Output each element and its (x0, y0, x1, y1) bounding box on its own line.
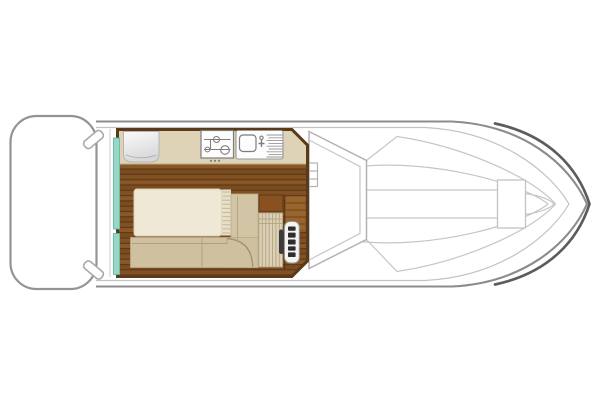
console-instrument (288, 227, 296, 231)
sink-unit (236, 131, 283, 160)
stove-body (201, 131, 234, 159)
console-instrument (288, 233, 296, 238)
console-instrument (288, 240, 296, 245)
boat-floorplan (0, 0, 600, 400)
double-bed (134, 189, 222, 236)
stove-knob (210, 160, 212, 162)
dinette-table (259, 195, 283, 212)
stove (201, 131, 234, 162)
helm-seat-cushion (259, 213, 283, 267)
stove-knob (218, 160, 220, 162)
console-instrument (288, 252, 296, 257)
steering-wheel (279, 230, 284, 255)
bow-locker (498, 180, 526, 228)
sliding-door-upper (113, 138, 119, 229)
stove-knob (214, 160, 216, 162)
sliding-door-lower (113, 234, 119, 275)
saloon-cabin (116, 128, 309, 278)
helm-seat (259, 213, 283, 267)
boat-floorplan-stage (0, 0, 600, 400)
console-instrument (288, 246, 296, 250)
